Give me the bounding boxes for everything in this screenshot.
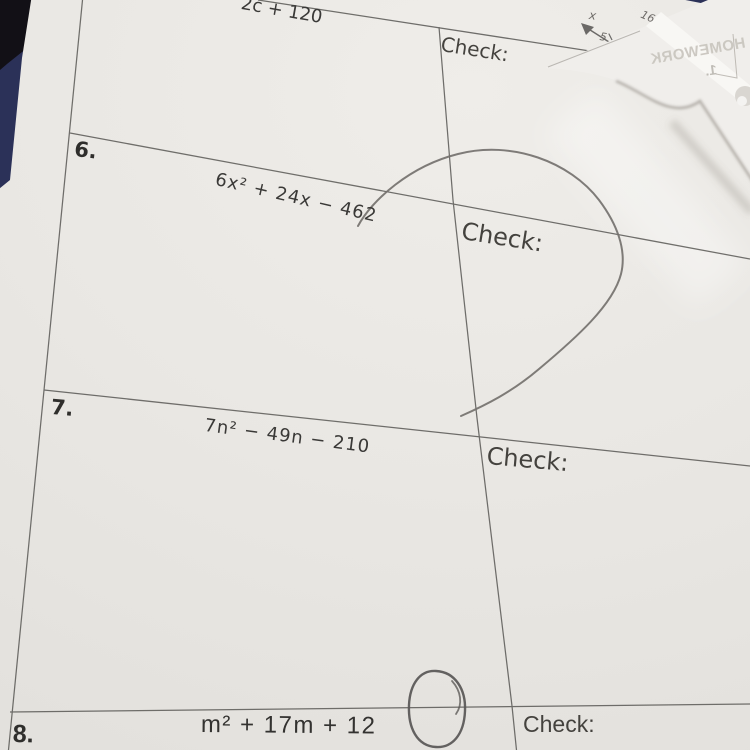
row7-top-line — [44, 390, 750, 466]
pencil-oval — [409, 671, 465, 747]
pencil-loop — [358, 150, 623, 416]
problem8-number: 8. — [12, 720, 33, 749]
left-border-line — [8, 0, 83, 750]
printed-and-pencil-graphics — [0, 0, 750, 750]
problem8-check-label: Check: — [523, 711, 595, 738]
homework-mirrored-number: 1. — [704, 61, 718, 78]
row8-top-line — [10, 704, 750, 712]
row6-top-line — [70, 133, 750, 259]
problem6-number: 6. — [73, 137, 98, 164]
pencil-arrowhead — [581, 23, 594, 35]
photo-scene: 2c + 120 Check: 6. 6x² + 24x − 462 Check… — [0, 0, 750, 750]
overlay-paper-shape — [545, 0, 750, 190]
problem8-expression: m² + 17m + 12 — [201, 711, 377, 741]
worksheet-grid-lines — [8, 0, 750, 750]
problem7-number: 7. — [50, 395, 75, 421]
glare-spot-highlight — [737, 96, 747, 106]
check-column-divider — [439, 27, 517, 750]
overlay-paper-corner — [545, 0, 750, 212]
pencil-marks — [358, 23, 661, 747]
